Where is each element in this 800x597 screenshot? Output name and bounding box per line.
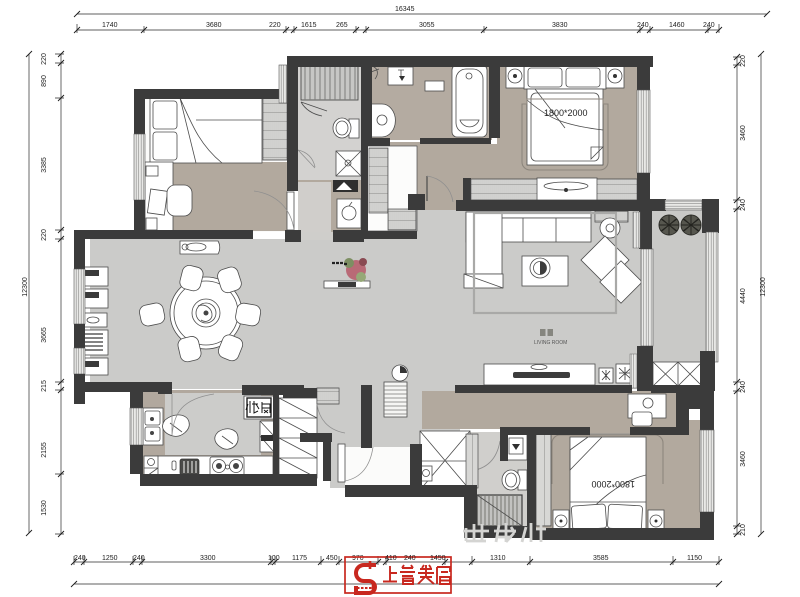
svg-text:240: 240	[703, 22, 715, 29]
svg-text:1175: 1175	[292, 555, 307, 562]
svg-text:1460: 1460	[669, 22, 685, 29]
svg-text:3830: 3830	[552, 22, 568, 29]
svg-text:220: 220	[41, 229, 48, 241]
svg-text:100: 100	[268, 555, 280, 562]
svg-text:1450: 1450	[430, 555, 446, 562]
svg-text:1740: 1740	[102, 22, 118, 29]
svg-text:3665: 3665	[41, 327, 48, 343]
svg-text:240: 240	[637, 22, 649, 29]
svg-text:1800*2000: 1800*2000	[591, 479, 635, 489]
svg-text:2155: 2155	[41, 442, 48, 458]
svg-text:450: 450	[326, 555, 338, 562]
svg-text:1615: 1615	[301, 22, 317, 29]
svg-text:1150: 1150	[687, 555, 702, 562]
svg-text:240: 240	[133, 555, 145, 562]
svg-text:215: 215	[41, 380, 48, 392]
svg-text:220: 220	[740, 55, 747, 67]
svg-text:1530: 1530	[41, 500, 48, 516]
svg-text:3460: 3460	[740, 451, 747, 467]
svg-text:3460: 3460	[740, 125, 747, 141]
svg-text:12300: 12300	[760, 277, 767, 297]
svg-text:210: 210	[740, 524, 747, 536]
svg-text:970: 970	[352, 555, 364, 562]
svg-text:LIVING ROOM: LIVING ROOM	[534, 340, 567, 346]
svg-text:3055: 3055	[419, 22, 435, 29]
svg-text:220: 220	[41, 53, 48, 65]
svg-text:3680: 3680	[206, 22, 222, 29]
svg-text:240: 240	[74, 555, 86, 562]
svg-text:1800*2000: 1800*2000	[544, 108, 588, 118]
svg-text:1250: 1250	[102, 555, 118, 562]
svg-text:240: 240	[404, 555, 416, 562]
svg-text:3300: 3300	[200, 555, 216, 562]
svg-text:12300: 12300	[22, 277, 29, 297]
svg-text:410: 410	[385, 555, 397, 562]
svg-text:16345: 16345	[395, 6, 415, 13]
svg-text:3385: 3385	[41, 157, 48, 173]
svg-text:1310: 1310	[490, 555, 506, 562]
svg-text:3585: 3585	[593, 555, 609, 562]
svg-text:265: 265	[336, 22, 348, 29]
svg-text:220: 220	[269, 22, 281, 29]
svg-text:4440: 4440	[740, 288, 747, 304]
svg-text:240: 240	[740, 381, 747, 393]
svg-text:240: 240	[740, 199, 747, 211]
svg-text:890: 890	[41, 75, 48, 87]
